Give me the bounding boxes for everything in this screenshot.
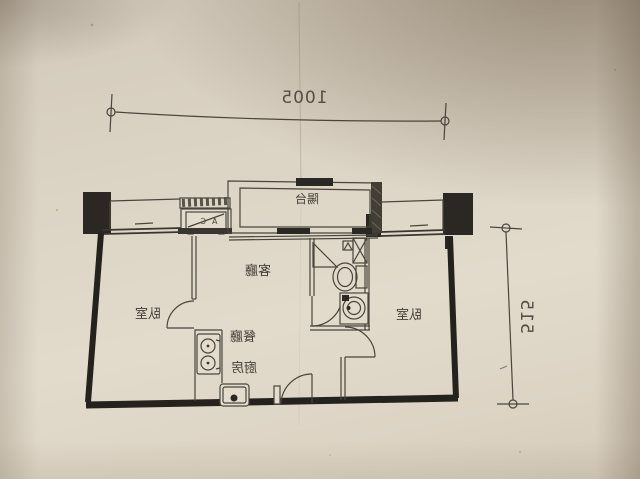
left-window-band (103, 199, 182, 234)
hatch-outline (180, 198, 230, 208)
balcony-door-frame-2 (352, 228, 372, 234)
bedroom-right-label: 臥室 (396, 307, 422, 323)
paper-specks (56, 24, 616, 456)
dimension-tick-right (444, 103, 446, 140)
wall-right (450, 237, 456, 398)
top-dimension: 1005 (107, 88, 449, 140)
floor-plan-drawing: 1005 515 AC (0, 0, 640, 479)
balcony-door-frame-1 (277, 228, 310, 234)
dining-room-label: 餐廳 (230, 329, 256, 345)
height-dimension-label: 515 (516, 298, 536, 333)
right-bedroom-door-swing (345, 327, 375, 357)
balcony-top-wall-segment (296, 178, 333, 186)
wall-left (88, 233, 101, 402)
niche-sill (178, 228, 232, 234)
right-dimension: 515 (490, 224, 536, 408)
dimension-line-vertical (506, 232, 513, 400)
sink-drain (231, 395, 238, 402)
left-bedroom-partition (167, 236, 196, 328)
hatched-strip (182, 201, 228, 203)
living-room-label: 客廳 (245, 263, 271, 279)
room-labels: 客廳 餐廳 廚房 臥室 臥室 (135, 263, 422, 376)
dimension-line (115, 112, 441, 121)
ac-unit-label: AC (195, 217, 218, 226)
bathroom (310, 238, 370, 330)
right-bedroom-partition (341, 327, 375, 400)
entry-door-jamb (274, 386, 280, 404)
dimension-tick-top (490, 227, 522, 229)
bedroom-left-label: 臥室 (135, 306, 161, 322)
bathroom-bottom-wall (310, 326, 370, 330)
width-dimension-label: 1005 (280, 88, 327, 108)
column-left (83, 192, 111, 234)
balcony-label: 陽台 (295, 191, 319, 206)
bathroom-door-swing (312, 296, 342, 326)
balcony: 陽台 (228, 178, 382, 240)
kitchen-label: 廚房 (231, 360, 257, 376)
right-window-band (380, 200, 445, 236)
wall-bottom (86, 398, 458, 405)
small-mark (500, 366, 507, 369)
dimension-tick-left (110, 94, 112, 132)
left-bedroom-door-swing (167, 301, 194, 328)
paper-crease (299, 2, 301, 425)
shower-symbol (313, 243, 337, 267)
photo-of-floor-plan-paper: 1005 515 AC (0, 0, 640, 479)
ac-niche: AC (178, 198, 232, 234)
bedroom-right-wall (341, 357, 345, 400)
column-right (443, 193, 473, 235)
